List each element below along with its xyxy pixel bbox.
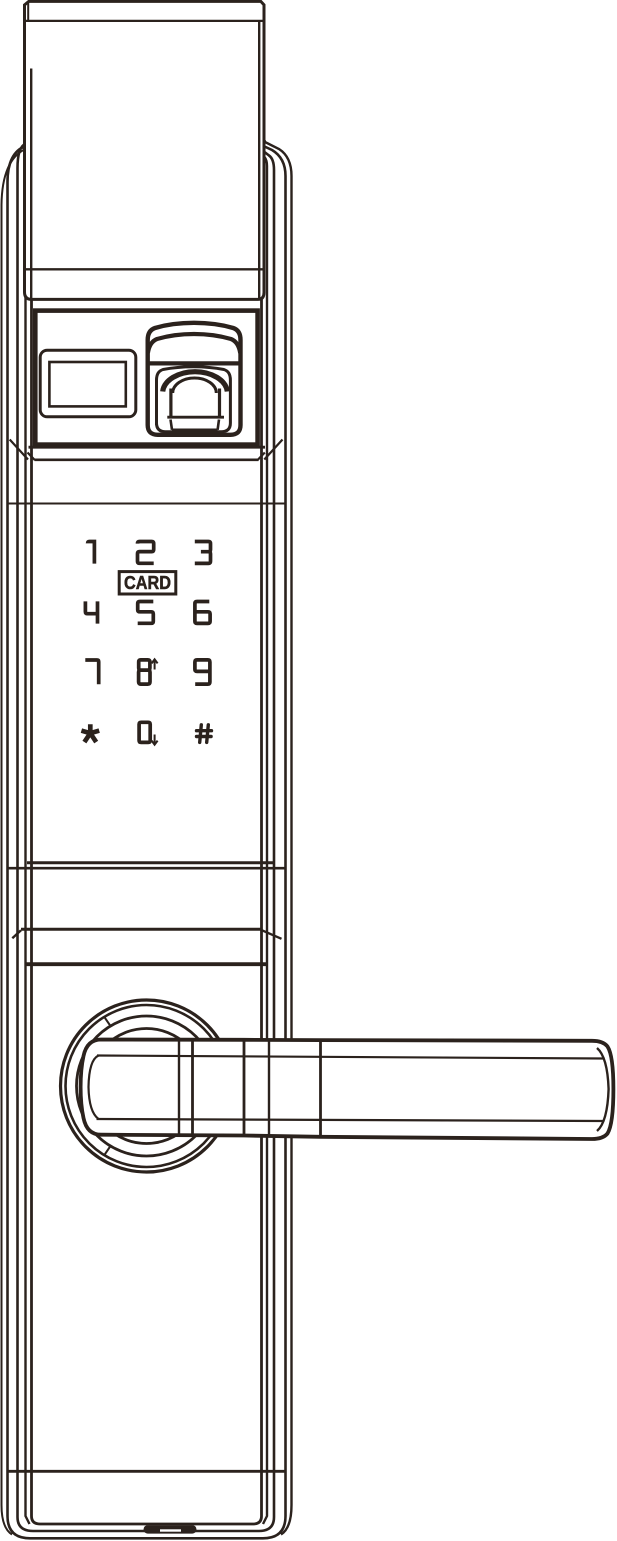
svg-text:CARD: CARD xyxy=(124,573,171,593)
